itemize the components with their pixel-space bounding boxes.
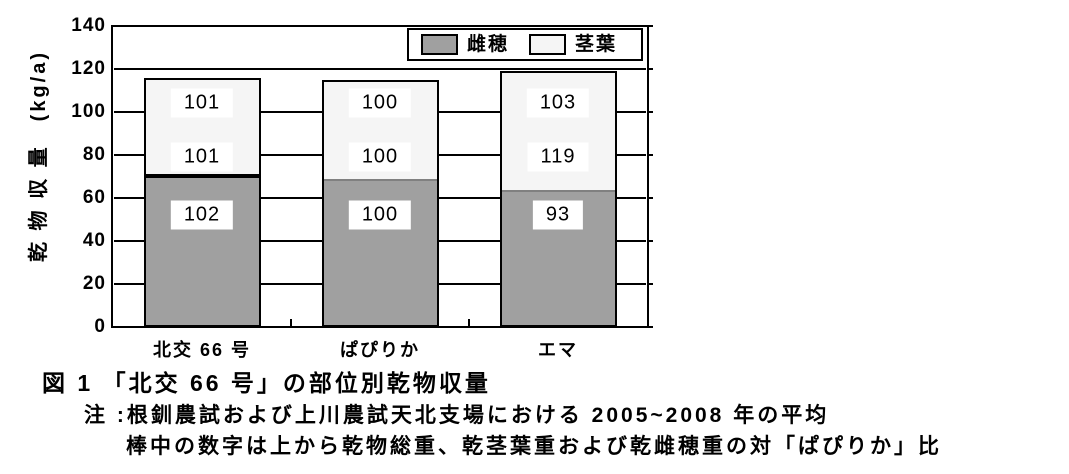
x-category-label: 北交 66 号 [102, 336, 302, 362]
y-tick-label: 20 [46, 273, 106, 295]
bar-value-label: 100 [349, 143, 411, 172]
y-tick-label: 40 [46, 230, 106, 252]
y-tick-label: 120 [46, 58, 106, 80]
bar-value-label: 119 [528, 143, 589, 172]
right-tick [648, 283, 653, 285]
bar-value-label: 101 [171, 143, 233, 172]
category-tick [468, 319, 470, 326]
legend-swatch-ear [421, 34, 458, 55]
legend-label: 茎葉 [575, 30, 617, 59]
bar-value-label: 93 [533, 201, 583, 230]
bar-value-label: 101 [171, 89, 233, 118]
y-tick-label: 0 [46, 316, 106, 338]
gridline [114, 68, 646, 70]
y-tick-label: 140 [46, 15, 106, 37]
x-category-label: ぱぴりか [280, 336, 480, 362]
right-tick [648, 154, 653, 156]
y-tick-label: 100 [46, 101, 106, 123]
right-tick [648, 25, 653, 27]
right-tick [648, 326, 653, 328]
figure-note-2: 棒中の数字は上から乾物総重、乾茎葉重および乾雌穂重の対「ぱぴりか」比 [126, 430, 942, 460]
legend-swatch-stem [529, 34, 566, 55]
right-tick [648, 240, 653, 242]
legend-label: 雌穂 [467, 30, 509, 59]
bar-value-label: 102 [171, 201, 233, 230]
figure-title: 図 1 「北交 66 号」の部位別乾物収量 [42, 364, 491, 398]
legend: 雌穂茎葉 [407, 28, 643, 61]
right-tick [648, 68, 653, 70]
bar-ear-segment [146, 174, 259, 325]
bar-value-label: 103 [527, 89, 589, 118]
bar-value-label: 100 [349, 201, 411, 230]
y-tick-label: 60 [46, 187, 106, 209]
right-tick [648, 197, 653, 199]
x-category-label: エマ [458, 336, 658, 362]
figure: 乾 物 収 量 (kg/a) 0204060801001201401011011… [0, 0, 1069, 474]
y-tick-label: 80 [46, 144, 106, 166]
figure-note-1: 注 :根釧農試および上川農試天北支場における 2005~2008 年の平均 [84, 399, 829, 429]
bar-value-label: 100 [349, 89, 411, 118]
category-tick [290, 319, 292, 326]
right-tick [648, 111, 653, 113]
